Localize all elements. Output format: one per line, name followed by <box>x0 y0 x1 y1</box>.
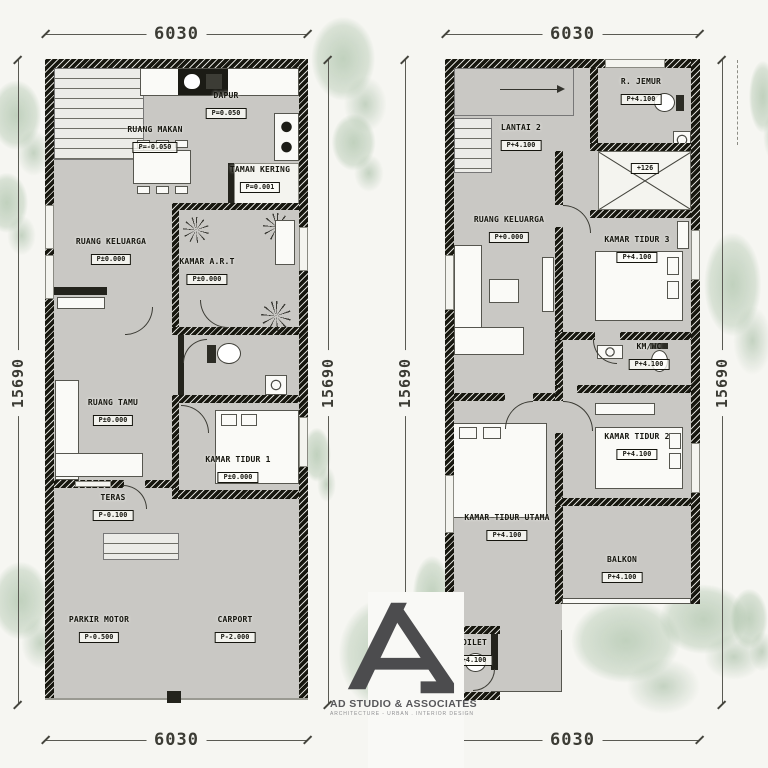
window <box>299 227 308 271</box>
pillow <box>483 427 501 439</box>
coffee-table <box>489 279 519 303</box>
plant <box>261 301 291 331</box>
room-name: BALKON <box>602 555 643 564</box>
floor-plan-sheet: { "brand": { "name": "AD STUDIO & ASSOCI… <box>0 0 768 768</box>
room-level: P±0.000 <box>91 254 132 265</box>
pillow <box>221 414 237 426</box>
studio-logo: AD STUDIO & ASSOCIATES ARCHITECTURE - UR… <box>330 598 464 766</box>
pillow <box>241 414 257 426</box>
pillow <box>669 433 681 449</box>
dining-chair <box>175 186 188 194</box>
room-level: P=-0.050 <box>133 142 178 153</box>
tv-cabinet <box>542 257 554 312</box>
room-label-ruang-keluarga-2: RUANG KELUARGA P+0.000 <box>474 215 544 243</box>
toilet-bowl <box>217 343 241 364</box>
wall-segment <box>178 490 299 499</box>
room-level: P+4.100 <box>501 140 542 151</box>
dining-chair <box>156 186 169 194</box>
room-label-r-jemur: R. JEMUR P+4.100 <box>621 77 662 105</box>
room-label-ruang-tamu: RUANG TAMU P±0.000 <box>88 398 138 426</box>
dimension-left-side: 15690 <box>6 60 30 705</box>
window <box>45 205 54 249</box>
room-name: RUANG KELUARGA <box>474 215 544 224</box>
dimension-tick <box>695 735 704 744</box>
dimension-value: 15690 <box>713 349 731 415</box>
extension-line <box>737 60 738 145</box>
pillow <box>459 427 477 439</box>
wall-segment <box>533 393 555 401</box>
ground-floor-plan: DAPUR P=0.050 RUANG MAKAN P=-0.050 TAMAN… <box>45 55 308 705</box>
room-level: P+0.000 <box>489 232 530 243</box>
room-level: P=0.001 <box>240 182 281 193</box>
dimension-value: 15690 <box>9 349 27 415</box>
wall-segment <box>145 480 179 488</box>
room-level: P+4.100 <box>617 449 658 460</box>
wall-segment <box>590 68 598 151</box>
window <box>75 481 111 487</box>
dimension-value: 6030 <box>146 730 207 750</box>
room-level: +126 <box>631 163 659 174</box>
room-label-kamar-tidur-1: KAMAR TIDUR 1 P±0.000 <box>205 455 270 483</box>
dimension-tick <box>13 701 22 710</box>
dimension-value: 15690 <box>319 349 337 415</box>
room-name: LANTAI 2 <box>501 123 542 132</box>
room-level: P±0.000 <box>218 472 259 483</box>
wall-segment <box>172 203 299 210</box>
room-name: KAMAR TIDUR 2 <box>604 432 669 441</box>
pillow <box>667 281 679 299</box>
room-name: TAMAN KERING <box>230 165 290 174</box>
room-name: KAMAR TIDUR 1 <box>205 455 270 464</box>
room-name: RUANG KELUARGA <box>76 237 146 246</box>
studio-name: AD STUDIO & ASSOCIATES <box>330 698 464 710</box>
wall-segment <box>620 332 700 340</box>
window <box>691 230 700 280</box>
room-label-void: +126 <box>631 155 659 174</box>
room-label-lantai-2: LANTAI 2 P+4.100 <box>501 123 542 151</box>
plant <box>183 217 209 243</box>
room-level: P+4.100 <box>487 530 528 541</box>
balcony-railing <box>562 598 691 604</box>
wall-segment <box>178 395 299 403</box>
room-name: RUANG MAKAN <box>127 125 182 134</box>
washbasin <box>265 375 287 395</box>
dimension-value: 6030 <box>146 24 207 44</box>
wall-segment <box>590 143 691 151</box>
window <box>445 475 454 533</box>
toilet-tank <box>207 345 216 363</box>
wall-segment <box>555 498 700 506</box>
room-label-kamar-art: KAMAR A.R.T P±0.000 <box>179 257 234 285</box>
tree-blob <box>300 2 396 144</box>
room-name: DAPUR <box>206 91 247 100</box>
room-label-balkon: BALKON P+4.100 <box>602 555 643 583</box>
wall-segment <box>577 385 700 393</box>
dining-table <box>133 150 191 184</box>
wall-segment <box>555 433 563 506</box>
dimension-bottom-right: 6030 <box>445 728 700 752</box>
room-level: P-0.500 <box>79 632 120 643</box>
stair-direction-line <box>500 89 558 90</box>
sink-drainer <box>206 74 222 89</box>
dimension-value: 15690 <box>396 349 414 415</box>
window <box>605 59 665 68</box>
pillow <box>669 453 681 469</box>
room-level: P+4.100 <box>602 572 643 583</box>
dimension-right-side: 15690 <box>710 60 734 705</box>
window <box>299 417 308 467</box>
stair-direction-arrow <box>557 85 565 93</box>
room-label-kamar-tidur-2: KAMAR TIDUR 2 P+4.100 <box>604 432 669 460</box>
stove <box>274 113 299 161</box>
wall-segment <box>172 203 179 333</box>
entry-steps <box>103 533 179 560</box>
room-label-kamar-tidur-3: KAMAR TIDUR 3 P+4.100 <box>604 235 669 263</box>
window <box>691 443 700 493</box>
gate-post <box>167 691 181 703</box>
exterior-wall <box>45 59 54 700</box>
room-name: R. JEMUR <box>621 77 662 86</box>
room-name: RUANG TAMU <box>88 398 138 407</box>
staircase <box>454 68 574 116</box>
room-name: KM/WC <box>629 342 670 351</box>
room-level: P+4.100 <box>617 252 658 263</box>
exterior-wall <box>45 59 308 68</box>
toilet-tank <box>676 95 684 111</box>
room-label-ruang-makan: RUANG MAKAN P=-0.050 <box>127 125 182 153</box>
exterior-wall <box>691 59 700 604</box>
dimension-value: 6030 <box>542 24 603 44</box>
dimension-tick <box>303 735 312 744</box>
room-name: PARKIR MOTOR <box>69 615 129 624</box>
room-label-carport: CARPORT P-2.000 <box>215 615 256 643</box>
room-name: CARPORT <box>215 615 256 624</box>
room-level: P-0.100 <box>93 510 134 521</box>
dimension-tick <box>303 29 312 38</box>
sofa <box>454 327 524 355</box>
room-level: P±0.000 <box>93 415 134 426</box>
room-label-teras: TERAS P-0.100 <box>93 493 134 521</box>
sink-basin <box>184 74 200 89</box>
wall-segment <box>555 332 595 340</box>
wall-segment <box>590 210 691 218</box>
room-level: P+4.100 <box>621 94 662 105</box>
room-label-parkir-motor: PARKIR MOTOR P-0.500 <box>69 615 129 643</box>
staircase <box>454 118 492 173</box>
second-floor-plan: LANTAI 2 P+4.100 R. JEMUR P+4.100 +126 R… <box>445 55 700 705</box>
cabinet <box>57 297 105 309</box>
wardrobe <box>595 403 655 415</box>
wall-segment <box>555 227 563 401</box>
wall-segment <box>555 506 563 604</box>
room-label-ruang-keluarga: RUANG KELUARGA P±0.000 <box>76 237 146 265</box>
tree-blob <box>744 48 768 170</box>
exterior-wall <box>299 59 308 700</box>
window <box>445 255 454 310</box>
logo-mark <box>338 598 456 698</box>
balcony-floor <box>562 506 691 600</box>
window <box>45 255 54 299</box>
wardrobe <box>275 220 295 265</box>
dimension-top-left: 6030 <box>45 22 308 46</box>
dimension-bottom-left: 6030 <box>45 728 308 752</box>
wall-segment <box>555 385 559 393</box>
dining-chair <box>137 186 150 194</box>
wall-segment <box>178 335 184 397</box>
studio-tagline: ARCHITECTURE - URBAN . INTERIOR DESIGN <box>330 711 464 717</box>
room-name: KAMAR A.R.T <box>179 257 234 266</box>
wardrobe <box>677 221 689 249</box>
room-name: KAMAR TIDUR UTAMA <box>464 513 549 522</box>
room-label-kmwc: KM/WC P+4.100 <box>629 342 670 370</box>
room-label-kamar-tidur-utama: KAMAR TIDUR UTAMA P+4.100 <box>464 513 549 541</box>
room-name: KAMAR TIDUR 3 <box>604 235 669 244</box>
wall-segment <box>555 151 563 205</box>
room-level: P=0.050 <box>206 108 247 119</box>
room-name: TERAS <box>93 493 134 502</box>
dimension-top-right: 6030 <box>445 22 700 46</box>
room-label-taman-kering: TAMAN KERING P=0.001 <box>230 165 290 193</box>
wall-segment <box>54 287 107 295</box>
room-level: P-2.000 <box>215 632 256 643</box>
dimension-tick <box>695 29 704 38</box>
room-label-dapur: DAPUR P=0.050 <box>206 91 247 119</box>
dimension-tick <box>717 701 726 710</box>
dimension-value: 6030 <box>542 730 603 750</box>
wall-segment <box>454 393 505 401</box>
sofa <box>55 453 143 477</box>
room-level: P+4.100 <box>629 359 670 370</box>
room-level: P±0.000 <box>187 274 228 285</box>
